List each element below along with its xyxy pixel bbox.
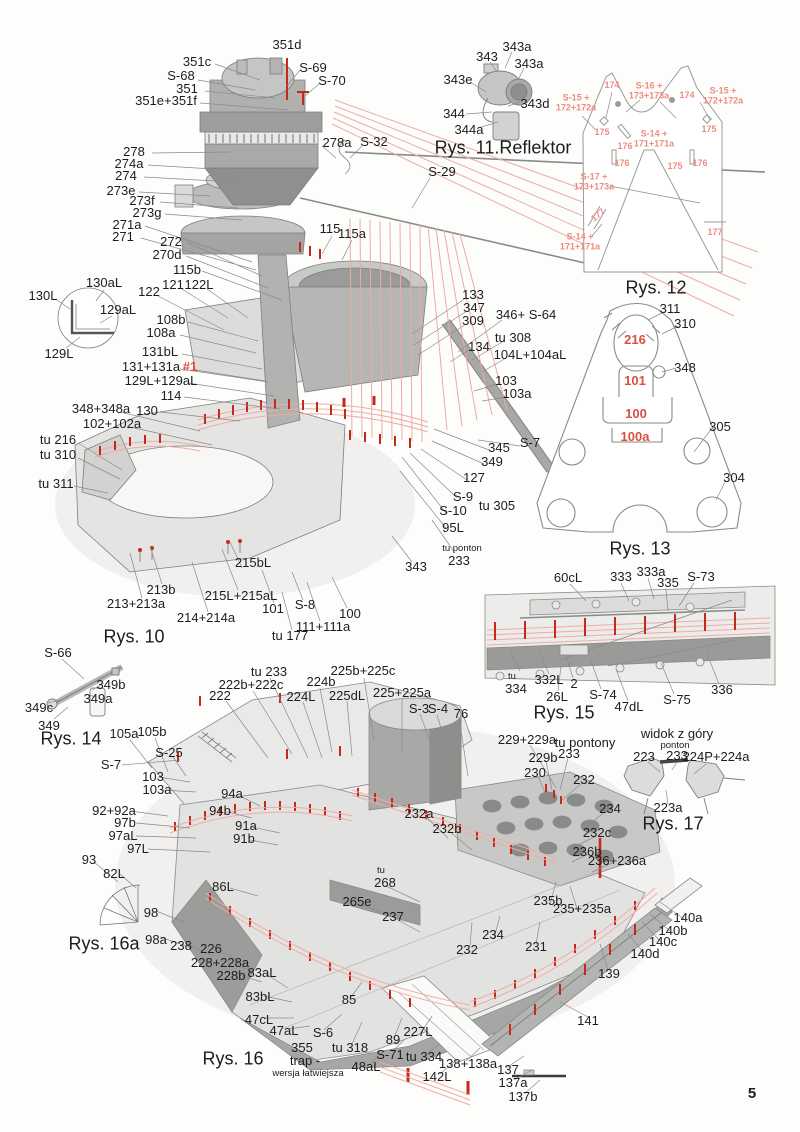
- part-label: 234: [599, 802, 621, 816]
- part-label: 115a: [338, 227, 366, 241]
- part-label: 349a: [84, 692, 113, 706]
- part-label: 108a: [147, 326, 176, 340]
- figure-caption: Rys. 12: [625, 278, 686, 297]
- part-label: 83aL: [248, 966, 277, 980]
- part-label: 238: [170, 939, 192, 953]
- part-label: 268: [374, 876, 396, 890]
- part-label: S-17 + 173+173a: [574, 172, 614, 193]
- part-label: 175: [594, 127, 609, 137]
- part-label: S-10: [439, 504, 466, 518]
- part-label: 278a: [323, 136, 352, 150]
- part-label: 175: [701, 124, 716, 134]
- part-label: 351d: [273, 38, 302, 52]
- part-label: 348+348a: [72, 402, 130, 416]
- part-label: 85: [342, 993, 356, 1007]
- part-label: S-8: [295, 598, 315, 612]
- part-label: S-66: [44, 646, 71, 660]
- part-label: 237: [382, 910, 404, 924]
- part-label: 86L: [212, 880, 234, 894]
- figure-caption: Rys. 17: [642, 814, 703, 833]
- part-label: 101: [624, 374, 646, 388]
- part-label: 232: [456, 943, 478, 957]
- part-label: 235+235a: [553, 902, 611, 916]
- part-label: 48aL: [352, 1060, 381, 1074]
- part-label: tu 334: [406, 1050, 442, 1064]
- part-label: 224L: [287, 690, 316, 704]
- part-label: 142L: [423, 1070, 452, 1084]
- part-label: 232b: [433, 822, 462, 836]
- part-label: S-16 + 173+173a: [629, 81, 669, 102]
- part-label: 137a: [499, 1076, 528, 1090]
- part-label: 130aL: [86, 276, 122, 290]
- part-label: 76: [454, 707, 468, 721]
- part-label: 89: [386, 1033, 400, 1047]
- part-label: 222: [209, 689, 231, 703]
- part-label: 333: [610, 570, 632, 584]
- page-number: 5: [748, 1086, 756, 1102]
- part-label: 103a: [503, 387, 532, 401]
- part-label: S-4: [428, 702, 448, 716]
- part-label: 137b: [509, 1090, 538, 1104]
- part-label: 343e: [444, 73, 473, 87]
- part-label: 98a: [145, 933, 167, 947]
- part-label: 91b: [233, 832, 255, 846]
- part-label: 129L: [45, 347, 74, 361]
- part-label: 122L: [185, 278, 214, 292]
- figure-caption: Rys. 15: [533, 703, 594, 722]
- part-label: 82L: [103, 867, 125, 881]
- part-label: 229+229a: [498, 733, 556, 747]
- part-label: 105a: [110, 727, 139, 741]
- part-label: 129aL: [100, 303, 136, 317]
- part-label: 228b: [217, 969, 246, 983]
- part-label: 236+236a: [588, 854, 646, 868]
- part-label: 100: [625, 407, 647, 421]
- part-label: 175: [667, 161, 682, 171]
- part-label: S-25: [155, 746, 182, 760]
- part-label: 225+225a: [373, 686, 431, 700]
- part-label: 131+131a: [122, 360, 180, 374]
- part-label: S-74: [589, 688, 616, 702]
- part-label: tu 318: [332, 1041, 368, 1055]
- part-label: 134: [468, 340, 490, 354]
- part-label: 335: [657, 576, 679, 590]
- part-label: 83bL: [246, 990, 275, 1004]
- part-label: 129L+129aL: [125, 374, 198, 388]
- part-label: 127: [463, 471, 485, 485]
- part-label: 141: [577, 1014, 599, 1028]
- part-label: 351c: [183, 55, 211, 69]
- part-label: tu 310: [40, 448, 76, 462]
- part-label: S-3: [409, 702, 429, 716]
- part-label: 343: [405, 560, 427, 574]
- part-label: 60cL: [554, 571, 582, 585]
- part-label: 139: [598, 967, 620, 981]
- part-label: tu 305: [479, 499, 515, 513]
- part-label: 234: [482, 928, 504, 942]
- part-label: 177: [707, 227, 722, 237]
- part-label: 121: [162, 278, 184, 292]
- part-label: 343a: [503, 40, 532, 54]
- part-label: S-7: [101, 758, 121, 772]
- part-label: 304: [723, 471, 745, 485]
- part-label: 102+102a: [83, 417, 141, 431]
- label-layer: 351d351cS-68351351e+351fS-69S-70278aS-32…: [0, 0, 800, 1132]
- part-label: 100a: [621, 430, 650, 444]
- part-label: S-15 + 172+172a: [703, 86, 743, 107]
- part-label: 95L: [442, 521, 464, 535]
- figure-caption: Rys. 10: [103, 627, 164, 646]
- part-label: 305: [709, 420, 731, 434]
- part-label: 47dL: [615, 700, 644, 714]
- part-label: 230: [524, 766, 546, 780]
- part-label: 114: [161, 389, 182, 403]
- part-label: 214+214a: [177, 611, 235, 625]
- part-label: S-14 + 171+171a: [560, 232, 600, 253]
- part-label: 227L: [404, 1025, 433, 1039]
- part-label: 233: [558, 747, 580, 761]
- part-label: 310: [674, 317, 696, 331]
- part-label: 344: [443, 107, 465, 121]
- part-label: 98: [144, 906, 158, 920]
- part-label: 2: [570, 677, 577, 691]
- part-label: 105b: [138, 725, 167, 739]
- part-label: 213+213a: [107, 597, 165, 611]
- part-label: 174: [679, 90, 694, 100]
- part-label: 344a: [455, 123, 484, 137]
- part-label: 232: [573, 773, 595, 787]
- part-label: 232a: [405, 807, 434, 821]
- part-label: wersja łatwiejsza: [272, 1069, 343, 1079]
- part-label: 174: [604, 80, 619, 90]
- part-label: S-9: [453, 490, 473, 504]
- part-label: 213b: [147, 583, 176, 597]
- part-label: 332L: [535, 673, 564, 687]
- part-label: S-70: [318, 74, 345, 88]
- part-label: 336: [711, 683, 733, 697]
- part-label: 176: [617, 141, 632, 151]
- part-label: 215bL: [235, 556, 271, 570]
- part-label: 104L+104aL: [494, 348, 567, 362]
- part-label: 140d: [631, 947, 660, 961]
- part-label: 177: [589, 206, 607, 223]
- part-label: S-15 + 172+172a: [556, 93, 596, 114]
- part-label: 176: [614, 158, 629, 168]
- part-label: 131bL: [142, 345, 178, 359]
- part-label: 97L: [127, 842, 149, 856]
- figure-caption: Rys. 16: [202, 1049, 263, 1068]
- part-label: 348: [674, 361, 696, 375]
- part-label: 265e: [343, 895, 372, 909]
- part-label: 94b: [209, 804, 231, 818]
- part-label: 271: [112, 230, 134, 244]
- part-label: tu 216: [40, 433, 76, 447]
- part-label: trap -: [290, 1054, 320, 1068]
- figure-caption: Rys. 16a: [68, 934, 139, 953]
- part-label: 229b: [529, 751, 558, 765]
- part-label: 216: [624, 333, 646, 347]
- part-label: 223: [633, 750, 655, 764]
- part-label: 349b: [97, 678, 126, 692]
- part-label: 225b+225c: [331, 664, 396, 678]
- part-label: 311: [660, 302, 681, 316]
- part-label: 94a: [221, 787, 243, 801]
- part-label: 176: [692, 158, 707, 168]
- part-label: tu 308: [495, 331, 531, 345]
- part-label: 343a: [515, 57, 544, 71]
- part-label: 343: [476, 50, 498, 64]
- part-label: 274: [115, 169, 137, 183]
- part-label: 349c: [25, 701, 53, 715]
- part-label: 225dL: [329, 689, 365, 703]
- part-label: 224P+224a: [683, 750, 750, 764]
- part-label: S-75: [663, 693, 690, 707]
- part-label: #1: [183, 360, 197, 374]
- part-label: 115b: [173, 263, 201, 277]
- part-label: 309: [462, 314, 484, 328]
- part-label: 343d: [521, 97, 550, 111]
- part-label: 93: [82, 853, 96, 867]
- part-label: 226: [200, 942, 222, 956]
- part-label: 122: [138, 285, 160, 299]
- instruction-page: 351d351cS-68351351e+351fS-69S-70278aS-32…: [0, 0, 800, 1132]
- part-label: 345: [488, 441, 510, 455]
- part-label: S-73: [687, 570, 714, 584]
- part-label: tu 177: [272, 629, 308, 643]
- part-label: 47aL: [270, 1024, 299, 1038]
- part-label: 351e+351f: [135, 94, 197, 108]
- part-label: S-7: [520, 436, 540, 450]
- part-label: 130L: [29, 289, 58, 303]
- part-label: S-29: [428, 165, 455, 179]
- part-label: 103a: [143, 783, 172, 797]
- part-label: 346+ S-64: [496, 308, 556, 322]
- part-label: 101: [262, 602, 284, 616]
- part-label: 349: [481, 455, 503, 469]
- part-label: tu 311: [38, 477, 73, 491]
- part-label: S-32: [360, 135, 387, 149]
- part-label: 270d: [153, 248, 182, 262]
- part-label: S-14 + 171+171a: [634, 129, 674, 150]
- part-label: S-6: [313, 1026, 333, 1040]
- figure-caption: Rys. 14: [40, 729, 101, 748]
- figure-caption: Rys. 13: [609, 539, 670, 558]
- figure-caption: Rys. 11.Reflektor: [435, 138, 572, 157]
- part-label: 232c: [583, 826, 611, 840]
- part-label: 231: [525, 940, 547, 954]
- part-label: 233: [448, 554, 470, 568]
- part-label: 334: [505, 682, 527, 696]
